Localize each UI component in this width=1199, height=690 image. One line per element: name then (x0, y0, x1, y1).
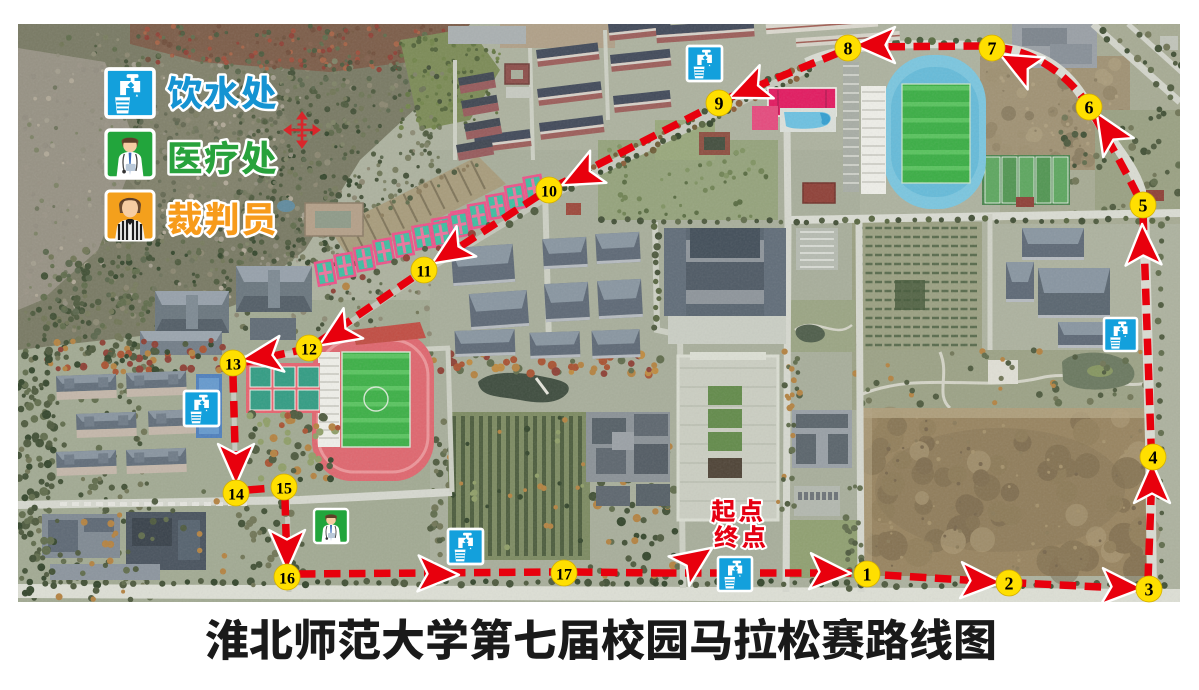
svg-text:5: 5 (1139, 196, 1148, 216)
svg-text:16: 16 (279, 571, 295, 588)
svg-text:3: 3 (1145, 580, 1154, 600)
svg-text:10: 10 (541, 184, 557, 201)
svg-text:8: 8 (844, 39, 853, 59)
svg-text:17: 17 (556, 567, 572, 584)
svg-text:13: 13 (225, 357, 241, 374)
svg-text:7: 7 (988, 39, 997, 59)
svg-text:4: 4 (1149, 448, 1158, 468)
svg-text:11: 11 (416, 264, 431, 281)
svg-text:1: 1 (863, 565, 872, 585)
svg-text:6: 6 (1085, 98, 1094, 118)
svg-text:14: 14 (228, 487, 244, 504)
svg-text:12: 12 (301, 342, 317, 359)
svg-text:15: 15 (276, 481, 292, 498)
svg-text:2: 2 (1005, 574, 1014, 594)
svg-text:9: 9 (715, 94, 724, 114)
